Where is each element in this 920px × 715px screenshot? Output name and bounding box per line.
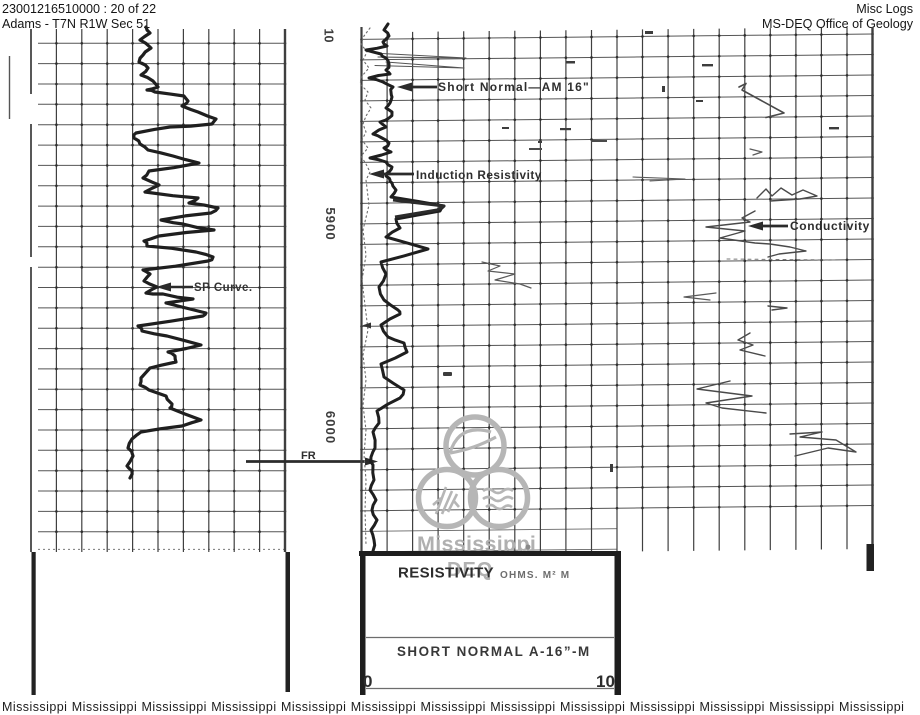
svg-text:SHORT NORMAL A-16”-M: SHORT NORMAL A-16”-M: [397, 644, 591, 659]
svg-text:Mississippi: Mississippi: [421, 700, 486, 714]
svg-text:Conductivity: Conductivity: [790, 219, 870, 233]
svg-text:FR: FR: [301, 450, 316, 462]
svg-text:Mississippi: Mississippi: [630, 700, 695, 714]
svg-text:Mississippi: Mississippi: [560, 700, 625, 714]
svg-text:23001216510000 : 20 of 22: 23001216510000 : 20 of 22: [2, 2, 156, 16]
svg-text:Mississippi: Mississippi: [700, 700, 765, 714]
svg-text:Mississippi: Mississippi: [490, 700, 555, 714]
svg-text:5900: 5900: [323, 207, 338, 240]
svg-text:SP Curve.: SP Curve.: [194, 282, 253, 294]
svg-text:Short Normal—AM 16": Short Normal—AM 16": [438, 80, 590, 94]
svg-text:MS-DEQ Office of Geology: MS-DEQ Office of Geology: [762, 17, 914, 31]
svg-text:Mississippi: Mississippi: [351, 700, 416, 714]
svg-text:Misc Logs: Misc Logs: [856, 2, 913, 16]
svg-text:Mississippi: Mississippi: [142, 700, 207, 714]
svg-text:Mississippi: Mississippi: [839, 700, 904, 714]
svg-text:OHMS. M² M: OHMS. M² M: [500, 570, 570, 581]
svg-text:RESISTIVITY: RESISTIVITY: [398, 565, 494, 582]
svg-text:Mississippi: Mississippi: [769, 700, 834, 714]
svg-text:Adams - T7N R1W Sec 51: Adams - T7N R1W Sec 51: [2, 17, 150, 31]
svg-text:Induction Resistivity: Induction Resistivity: [416, 168, 542, 182]
svg-text:10: 10: [322, 29, 336, 43]
svg-text:6000: 6000: [323, 411, 338, 444]
svg-text:Mississippi: Mississippi: [281, 700, 346, 714]
svg-text:Mississippi: Mississippi: [72, 700, 137, 714]
svg-text:Mississippi: Mississippi: [2, 700, 67, 714]
svg-text:Mississippi: Mississippi: [211, 700, 276, 714]
